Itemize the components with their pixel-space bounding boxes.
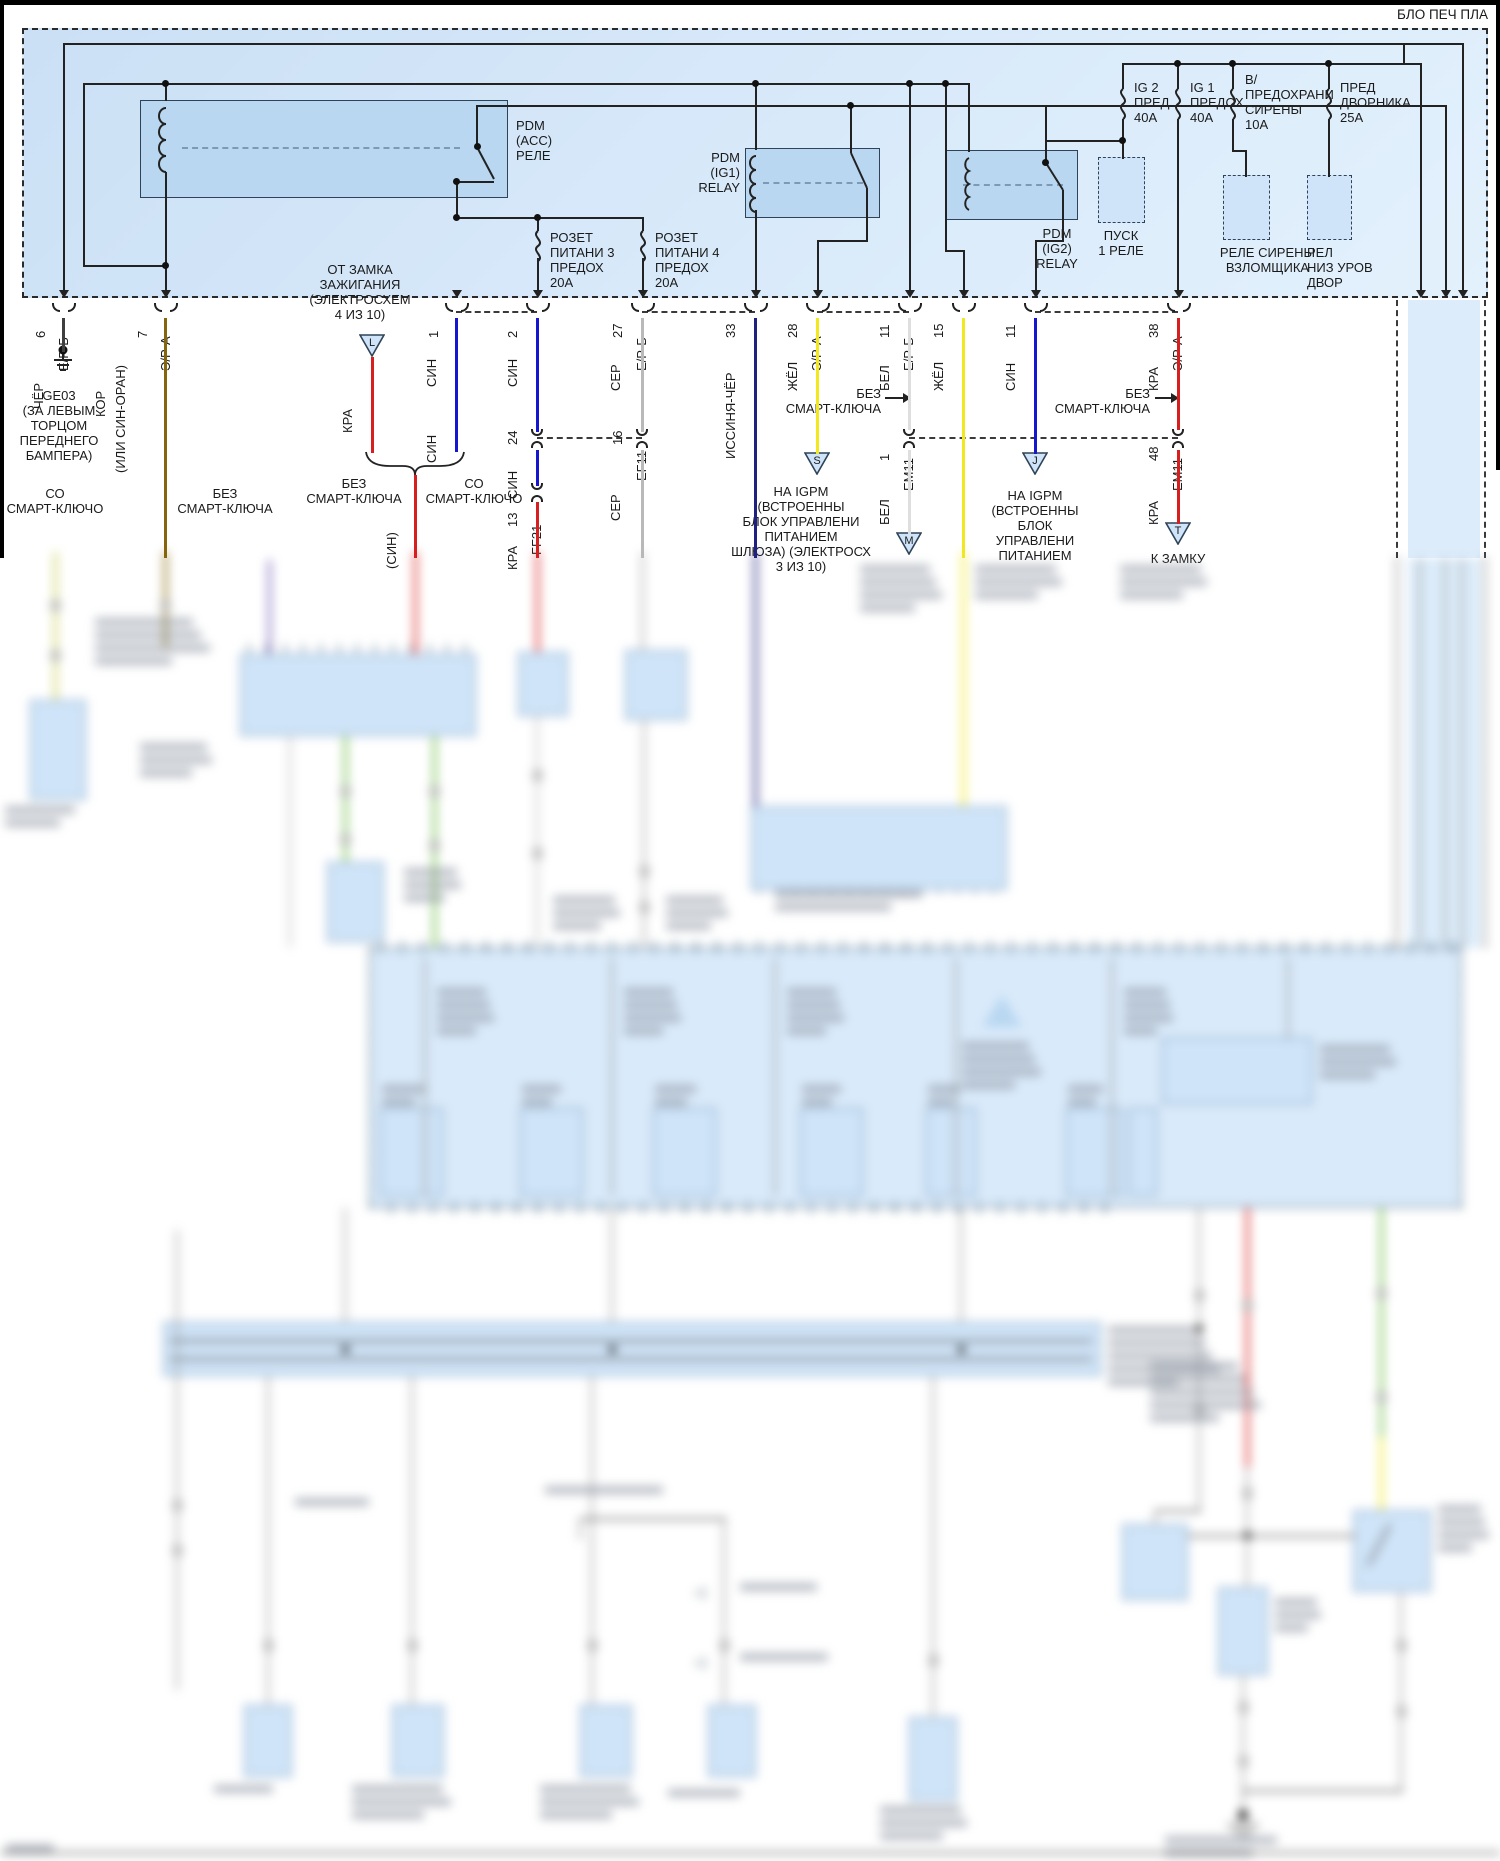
flow-arrow-down [1416,290,1426,298]
blurred-connector-break [341,834,350,845]
triangle-connector-T: T [1165,522,1191,545]
box-rele-sireny [1223,175,1270,240]
blurred-text-smudge [545,1486,760,1499]
module-pin-tick [1094,941,1096,953]
module-pin-tick [1241,941,1243,953]
blurred-connector-break [1239,1756,1248,1767]
flow-arrow-down [452,290,462,298]
junction-dot [1325,60,1332,67]
blurred-text-smudge [775,890,985,916]
colored-wire [1034,318,1037,454]
label-fuse-wiper: ПРЕД ДВОРНИКА 25A [1340,80,1411,125]
junction-dot [453,214,460,221]
box-pin-tick [392,644,394,653]
svg-text:T: T [1175,525,1182,537]
note-arrow-line [885,397,903,399]
right-bus-band [1408,300,1480,558]
bus-line [83,83,970,85]
blurred-wire [1242,1675,1244,1815]
blurred-text-smudge [95,618,235,670]
module-pin-tick [464,941,466,953]
junction-dot [906,80,913,87]
module-pin-tick [863,941,865,953]
blurred-wire [723,1518,725,1705]
colored-wire [536,318,539,432]
wire-color-label: КРА [1147,501,1160,525]
module-pin-tick [747,1202,749,1214]
blurred-line [0,1852,1500,1854]
pin-connector-arc [968,303,976,312]
pin-connector-arc [914,303,922,312]
bus-line [963,250,965,292]
flow-arrow-down [161,290,171,298]
module-pin-tick [663,1202,665,1214]
connector-dashed-link [642,311,755,313]
relay-ig2-centerline [963,184,1063,186]
blurred-wire [1246,1208,1249,1467]
blurred-wire [1287,958,1289,1038]
module-pin-tick [1031,941,1033,953]
blurred-text-smudge [140,743,235,782]
module-pin-tick [579,1202,581,1214]
pin-connector-arc [52,303,60,312]
blurred-text-smudge [655,1085,713,1111]
module-pin-tick [1041,1202,1043,1214]
bus-line [755,210,757,290]
blurred-connector-break [1377,1288,1386,1299]
blurred-text-smudge [352,1785,482,1824]
bus-line [476,105,1447,107]
junction-dot [1174,60,1181,67]
blurred-text-smudge [382,1085,442,1111]
pin-number: 33 [724,324,737,338]
junction-dot [534,214,541,221]
blurred-connector-break [51,600,60,611]
blurred-box [518,652,568,716]
junction-dot [162,80,169,87]
pin-number: 15 [932,324,945,338]
wire-color-label: БЕЛ [878,499,891,525]
flow-arrow-down [1441,290,1451,298]
blurred-connector-break [1377,1392,1386,1403]
blurred-dashed [1396,558,1398,947]
page-border-left [0,0,4,558]
blurred-text-smudge [928,1085,973,1111]
module-pin-tick [495,1202,497,1214]
bus-line [1445,105,1447,292]
blurred-wire [289,736,291,947]
wire-color-label: СЕР [609,494,622,521]
wire-break-mark [531,441,543,448]
blurred-box [30,700,86,800]
bus-line [1045,105,1047,163]
blurred-box [240,654,476,736]
blurred-connector-break [720,1640,729,1651]
flow-arrow-down [1174,290,1184,298]
module-pin-tick [800,941,802,953]
blurred-text-smudge [975,565,1090,604]
pin-connector-arc [445,303,453,312]
module-pin-tick [789,1202,791,1214]
blurred-text-smudge [5,806,105,832]
pin-connector-arc [542,303,550,312]
colored-wire [816,318,819,454]
blurred-text-smudge [1320,1045,1420,1084]
connector-dashed-link [817,311,909,313]
bus-line [63,43,1464,45]
blurred-nav-triangle: ◁ [694,1653,706,1671]
pin-connector-arc [170,303,178,312]
page-border-top [0,0,1500,5]
bus-line [456,181,494,183]
blurred-wire [1444,558,1446,947]
module-pin-tick [390,1202,392,1214]
blurred-box [244,1705,292,1777]
module-pin-tick [905,941,907,953]
blurred-wire [1380,1437,1383,1510]
bus-line [1177,63,1179,89]
connector-dashed-link [456,311,537,313]
blurred-text-smudge [668,1789,798,1802]
pin-connector-arc [760,303,768,312]
blurred-line [1243,1790,1403,1792]
colored-wire [908,450,911,534]
module-pin-tick [873,1202,875,1214]
pin-connector-arc [68,303,76,312]
blurred-wire [54,552,57,700]
module-pin-tick [569,941,571,953]
junction-dot [162,262,169,269]
bus-line [83,83,85,267]
blurred-text-smudge [553,896,641,935]
blurred-text-smudge [1438,1505,1500,1557]
blurred-connector-break [1239,1702,1248,1713]
blurred-junction-dot [609,1346,616,1353]
label-fuse-rozet4: РОЗЕТ ПИТАНИ 4 ПРЕДОХ 20A [655,230,719,290]
module-pin-tick [1136,941,1138,953]
module-pin-tick [1083,1202,1085,1214]
blurred-box [1129,1108,1157,1196]
blurred-box [380,1108,443,1196]
blurred-triangle-symbol [982,995,1022,1027]
module-pin-tick [632,941,634,953]
module-pin-tick [758,941,760,953]
blurred-text-smudge [1165,1836,1325,1861]
bus-line [83,265,167,267]
blurred-box [800,1108,863,1196]
note-ot-zamka: ОТ ЗАМКА ЗАЖИГАНИЯ (ЭЛЕКТРОСХЕМ 4 ИЗ 10) [285,262,435,322]
pin-connector-arc [806,303,814,312]
module-pin-tick [821,941,823,953]
module-pin-tick [1409,941,1411,953]
blurred-connector-break [161,600,170,611]
blurred-diagram-region: ◁◁ [0,552,1500,1861]
svg-text:M: M [904,535,913,547]
colored-wire [536,450,539,486]
module-pin-tick [1262,941,1264,953]
colored-wire [414,475,417,558]
connector-dashed-link [537,437,642,439]
blurred-wire [611,958,613,1196]
label-fuse-ig2: IG 2 ПРЕД 40A [1134,80,1170,125]
module-pin-tick [684,1202,686,1214]
blurred-text-smudge [437,988,507,1040]
bus-line [1420,63,1422,292]
blurred-wire [536,552,539,652]
note-bez-smart-left: БЕЗ СМАРТ-КЛЮЧА [168,486,282,516]
module-pin-tick [1325,941,1327,953]
box-pin-tick [410,644,412,653]
box-pin-tick [248,644,250,653]
pin-number: 11 [1004,325,1017,339]
module-pin-tick [537,1202,539,1214]
colored-wire [754,318,757,558]
dashed-bus [1484,300,1486,558]
flow-arrow-down [533,290,543,298]
blurred-wire [591,1376,593,1705]
blurred-wire [962,552,965,806]
bus-line [642,217,644,231]
bus-line [866,188,868,242]
module-pin-tick [1104,1202,1106,1214]
module-pin-tick [1010,941,1012,953]
colored-wire [962,318,965,558]
blurred-text-smudge [787,988,857,1040]
bus-line [945,250,965,252]
blurred-connector-break [588,1640,597,1651]
module-pin-tick [1199,941,1201,953]
module-pin-tick [915,1202,917,1214]
wire-color-label: СИН [506,471,519,499]
relay-ig1-centerline [763,182,863,184]
blurred-wire [960,1208,962,1322]
colored-wire [1177,450,1180,524]
page-border-right [1496,0,1500,470]
blurred-box [1218,1587,1268,1675]
box-pin-tick [446,644,448,653]
label-pdm-acc: PDM (ACC) РЕЛЕ [516,118,552,163]
flow-arrow-down [638,290,648,298]
blurred-connector-break [430,840,439,851]
module-pin-tick [989,941,991,953]
blurred-connector-break [264,1640,273,1651]
pin-number: 38 [1147,324,1160,338]
pin-number: 6 [34,331,47,338]
bus-line [1328,119,1330,177]
blurred-wire [1154,1510,1156,1524]
blurred-line [1233,1830,1253,1832]
colored-wire [62,318,65,352]
module-pin-tick [1220,941,1222,953]
blurred-wire [536,716,538,947]
bus-line [1232,63,1234,89]
blurred-wire [579,1518,581,1540]
module-pin-tick [411,1202,413,1214]
blurred-wire [1419,558,1421,947]
bus-line [1122,63,1422,65]
blurred-connector-break [408,1640,417,1651]
bus-line [456,217,644,219]
pin-number: 13 [506,513,519,527]
blurred-box [327,862,384,942]
colored-wire [164,318,167,558]
box-pusk-rele [1098,157,1145,223]
blurred-text-smudge [624,988,694,1040]
module-pin-tick [1157,941,1159,953]
module-pin-tick [1073,941,1075,953]
flow-arrow-down [905,290,915,298]
pin-number: 28 [786,324,799,338]
blurred-connector-break [929,1655,938,1666]
wire-color-label: БЕЛ [878,365,891,391]
blurred-text-smudge [1275,1598,1335,1637]
blurred-box [1353,1510,1431,1592]
box-pin-tick [338,644,340,653]
blurred-wire [344,1208,346,1322]
colored-wire [641,318,644,432]
blurred-dashed [1484,558,1486,947]
blurred-text-smudge [295,1498,430,1511]
module-pin-tick [653,941,655,953]
blurred-line [1155,1510,1201,1512]
blurred-box [1066,1108,1123,1196]
wire-color-label: СИН [1004,363,1017,391]
colored-wire [371,357,374,453]
blurred-connector-break [1397,1640,1406,1651]
module-pin-tick [884,941,886,953]
junction-dot [474,143,481,150]
wire-break-mark [531,495,543,502]
blurred-wire [268,560,271,654]
blurred-text-smudge [1120,565,1235,604]
blurred-wire [411,1376,413,1705]
box-pin-tick [320,644,322,653]
blurred-junction-dot [958,1346,965,1353]
flow-arrow-down [1458,290,1468,298]
pin-number: 7 [136,331,149,338]
blurred-text-smudge [404,868,479,907]
module-pin-tick [516,1202,518,1214]
module-pin-tick [968,941,970,953]
blurred-connector-break [1195,1290,1204,1301]
label-fuse-siren: В/ ПРЕДОХРАНИ СИРЕНЫ 10A [1245,72,1334,132]
flow-arrow-down [751,290,761,298]
junction-dot [453,178,460,185]
triangle-connector-S: S [804,452,830,475]
box-pin-tick [374,644,376,653]
bus-line [1403,43,1405,65]
blurred-connector-break [430,786,439,797]
bus-line [642,258,644,290]
blurred-connector-break [51,650,60,661]
wiring-diagram-page: БЛО ПЕЧ ПЛА PDM (ACC) РЕЛЕ PDM (IG1) REL… [0,0,1500,1861]
junction-dot [1042,159,1049,166]
colored-wire [536,502,539,558]
wire-break-mark [636,441,648,448]
bus-line [1462,43,1464,292]
module-pin-tick [779,941,781,953]
module-pin-tick [842,941,844,953]
wire-color-label: СИН [425,359,438,387]
module-pin-tick [422,941,424,953]
note-arrow-line [1155,397,1171,399]
blurred-wire [424,958,426,1196]
svg-text:J: J [1032,455,1038,467]
blurred-text-smudge [6,1844,94,1857]
wire-break-mark [1172,429,1184,436]
svg-text:S: S [813,455,820,467]
box-rel-dvor [1307,175,1352,240]
blurred-wire [1400,1592,1402,1790]
flow-arrow-down [813,290,823,298]
module-pin-tick [1451,941,1453,953]
module-pin-tick [621,1202,623,1214]
module-pin-tick [401,941,403,953]
pin-number: 27 [611,324,624,338]
blurred-connector-break [533,848,542,859]
junction-dot [1229,60,1236,67]
bus-line [945,83,947,252]
junction-dot [752,80,759,87]
blurred-text-smudge [962,1042,1058,1094]
bus-line [850,105,852,153]
blurred-wire [955,958,957,1196]
blurred-box [1162,1038,1312,1104]
bus-line [1122,63,1124,89]
module-pin-tick [453,1202,455,1214]
module-pin-tick [894,1202,896,1214]
module-pin-tick [1388,941,1390,953]
bus-line [968,83,970,152]
junction-dot [1119,137,1126,144]
blurred-wire [611,1208,613,1322]
blurred-line [1188,1535,1355,1537]
wire-color-label: СИН [506,359,519,387]
blurred-connector-break [533,770,542,781]
blurred-text-smudge [860,565,960,617]
blurred-box [520,1108,583,1196]
wire-color-label: КРА [341,409,354,433]
wire-break-mark [903,441,915,448]
blurred-connector-break [173,1500,182,1511]
module-pin-tick [506,941,508,953]
module-pin-tick [1062,1202,1064,1214]
wire-color-label: ИССИНЯ-ЧЁР [724,372,737,459]
page-title: БЛО ПЕЧ ПЛА [1330,7,1488,23]
wire-break-mark [903,429,915,436]
module-pin-tick [768,1202,770,1214]
label-pdm-ig1: PDM (IG1) RELAY [660,150,740,195]
triangle-connector-J: J [1022,452,1048,475]
module-pin-tick [1052,941,1054,953]
module-pin-tick [380,941,382,953]
bus-line [755,83,757,150]
label-fuse-rozet3: РОЗЕТ ПИТАНИ 3 ПРЕДОХ 20A [550,230,614,290]
blurred-wire [641,552,644,650]
note-bez-arrow-2: БЕЗ СМАРТ-КЛЮЧА [1000,386,1150,416]
blurred-wire [1461,558,1463,947]
connector-dashed-link [1035,311,1178,313]
box-pin-tick [284,644,286,653]
module-pin-tick [737,941,739,953]
blurred-wire [176,1230,178,1690]
module-pin-tick [999,1202,1001,1214]
pin-connector-arc [1183,303,1191,312]
bus-line [1232,119,1234,152]
blurred-text-smudge [740,1653,900,1666]
blurred-junction-dot [342,1346,349,1353]
bus-line [63,43,65,290]
